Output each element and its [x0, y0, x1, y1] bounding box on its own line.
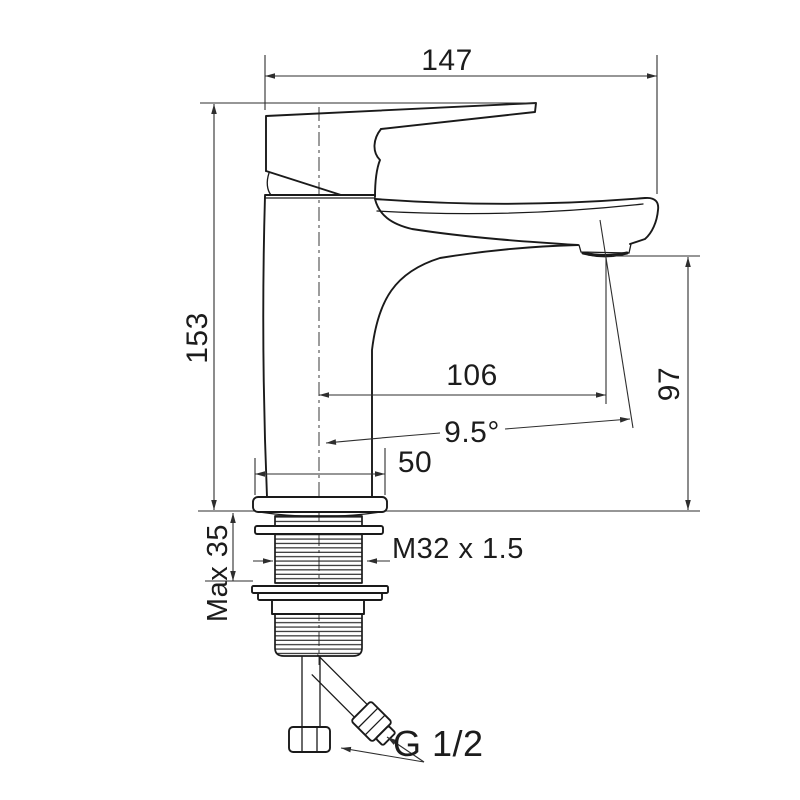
handle-base-curve [267, 173, 271, 195]
drawing-canvas: 147 153 97 106 9.5° 50 Max 35 M32 x 1.5 [0, 0, 800, 800]
hose-diagonal-top [318, 655, 367, 704]
dim-outlet-height-label: 97 [653, 367, 686, 401]
hose-nut-vertical [289, 727, 330, 752]
body-left-edge [263, 196, 267, 497]
dim-base-width-label: 50 [398, 446, 432, 479]
dim-overall-height-label: 153 [181, 312, 214, 364]
angle-arc-left [326, 433, 440, 443]
lower-washer-top [252, 586, 388, 593]
hose-diagonal-bottom [312, 675, 354, 717]
spray-angle-line [600, 220, 633, 428]
angle-arc-right [505, 419, 630, 429]
upper-washer [255, 526, 383, 534]
handle-base-cone [266, 171, 341, 195]
dim-overall-length-label: 147 [421, 44, 473, 77]
handle-lever [266, 103, 536, 171]
spout-top-and-tip [375, 198, 658, 244]
lower-washer-bottom [258, 593, 382, 600]
dimension-annotations: 147 153 97 106 9.5° 50 Max 35 M32 x 1.5 [181, 44, 700, 764]
shank-thread-lower [275, 614, 362, 656]
handle-front-edge [374, 129, 381, 197]
dim-shank-thread-label: M32 x 1.5 [392, 533, 524, 565]
spout-crease [377, 204, 643, 214]
spout-underside [375, 199, 578, 245]
dim-hose-thread-label: G 1/2 [393, 723, 484, 764]
base-flange [253, 497, 387, 512]
dim-spray-angle-label: 9.5° [444, 416, 500, 449]
dim-mounting-thickness-label: Max 35 [202, 524, 234, 622]
lock-nut [272, 600, 364, 614]
dim-spout-reach-label: 106 [446, 359, 498, 392]
faucet-technical-drawing: 147 153 97 106 9.5° 50 Max 35 M32 x 1.5 [0, 0, 800, 800]
